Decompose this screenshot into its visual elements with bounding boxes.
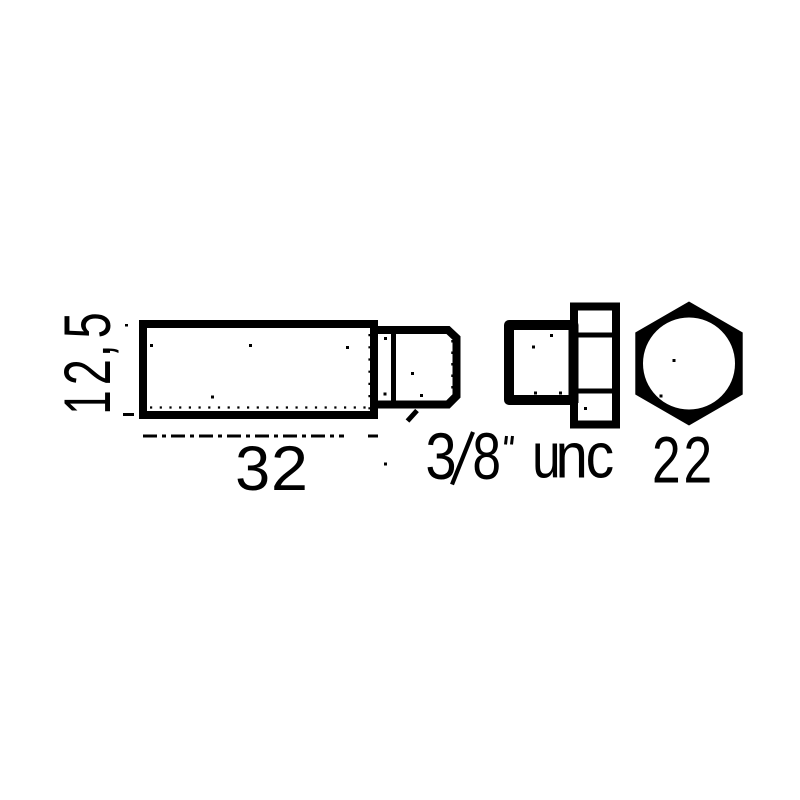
svg-text:2: 2 bbox=[652, 422, 681, 497]
svg-text:3: 3 bbox=[235, 434, 270, 504]
svg-text:n: n bbox=[556, 420, 588, 491]
svg-text:8: 8 bbox=[472, 419, 501, 494]
svg-text:2: 2 bbox=[271, 433, 308, 504]
svg-text:c: c bbox=[586, 419, 614, 491]
svg-text:2: 2 bbox=[683, 422, 712, 497]
svg-text:5: 5 bbox=[51, 312, 125, 338]
svg-text:1: 1 bbox=[50, 390, 124, 414]
svg-text:,: , bbox=[51, 344, 125, 357]
svg-text:2: 2 bbox=[51, 359, 125, 385]
